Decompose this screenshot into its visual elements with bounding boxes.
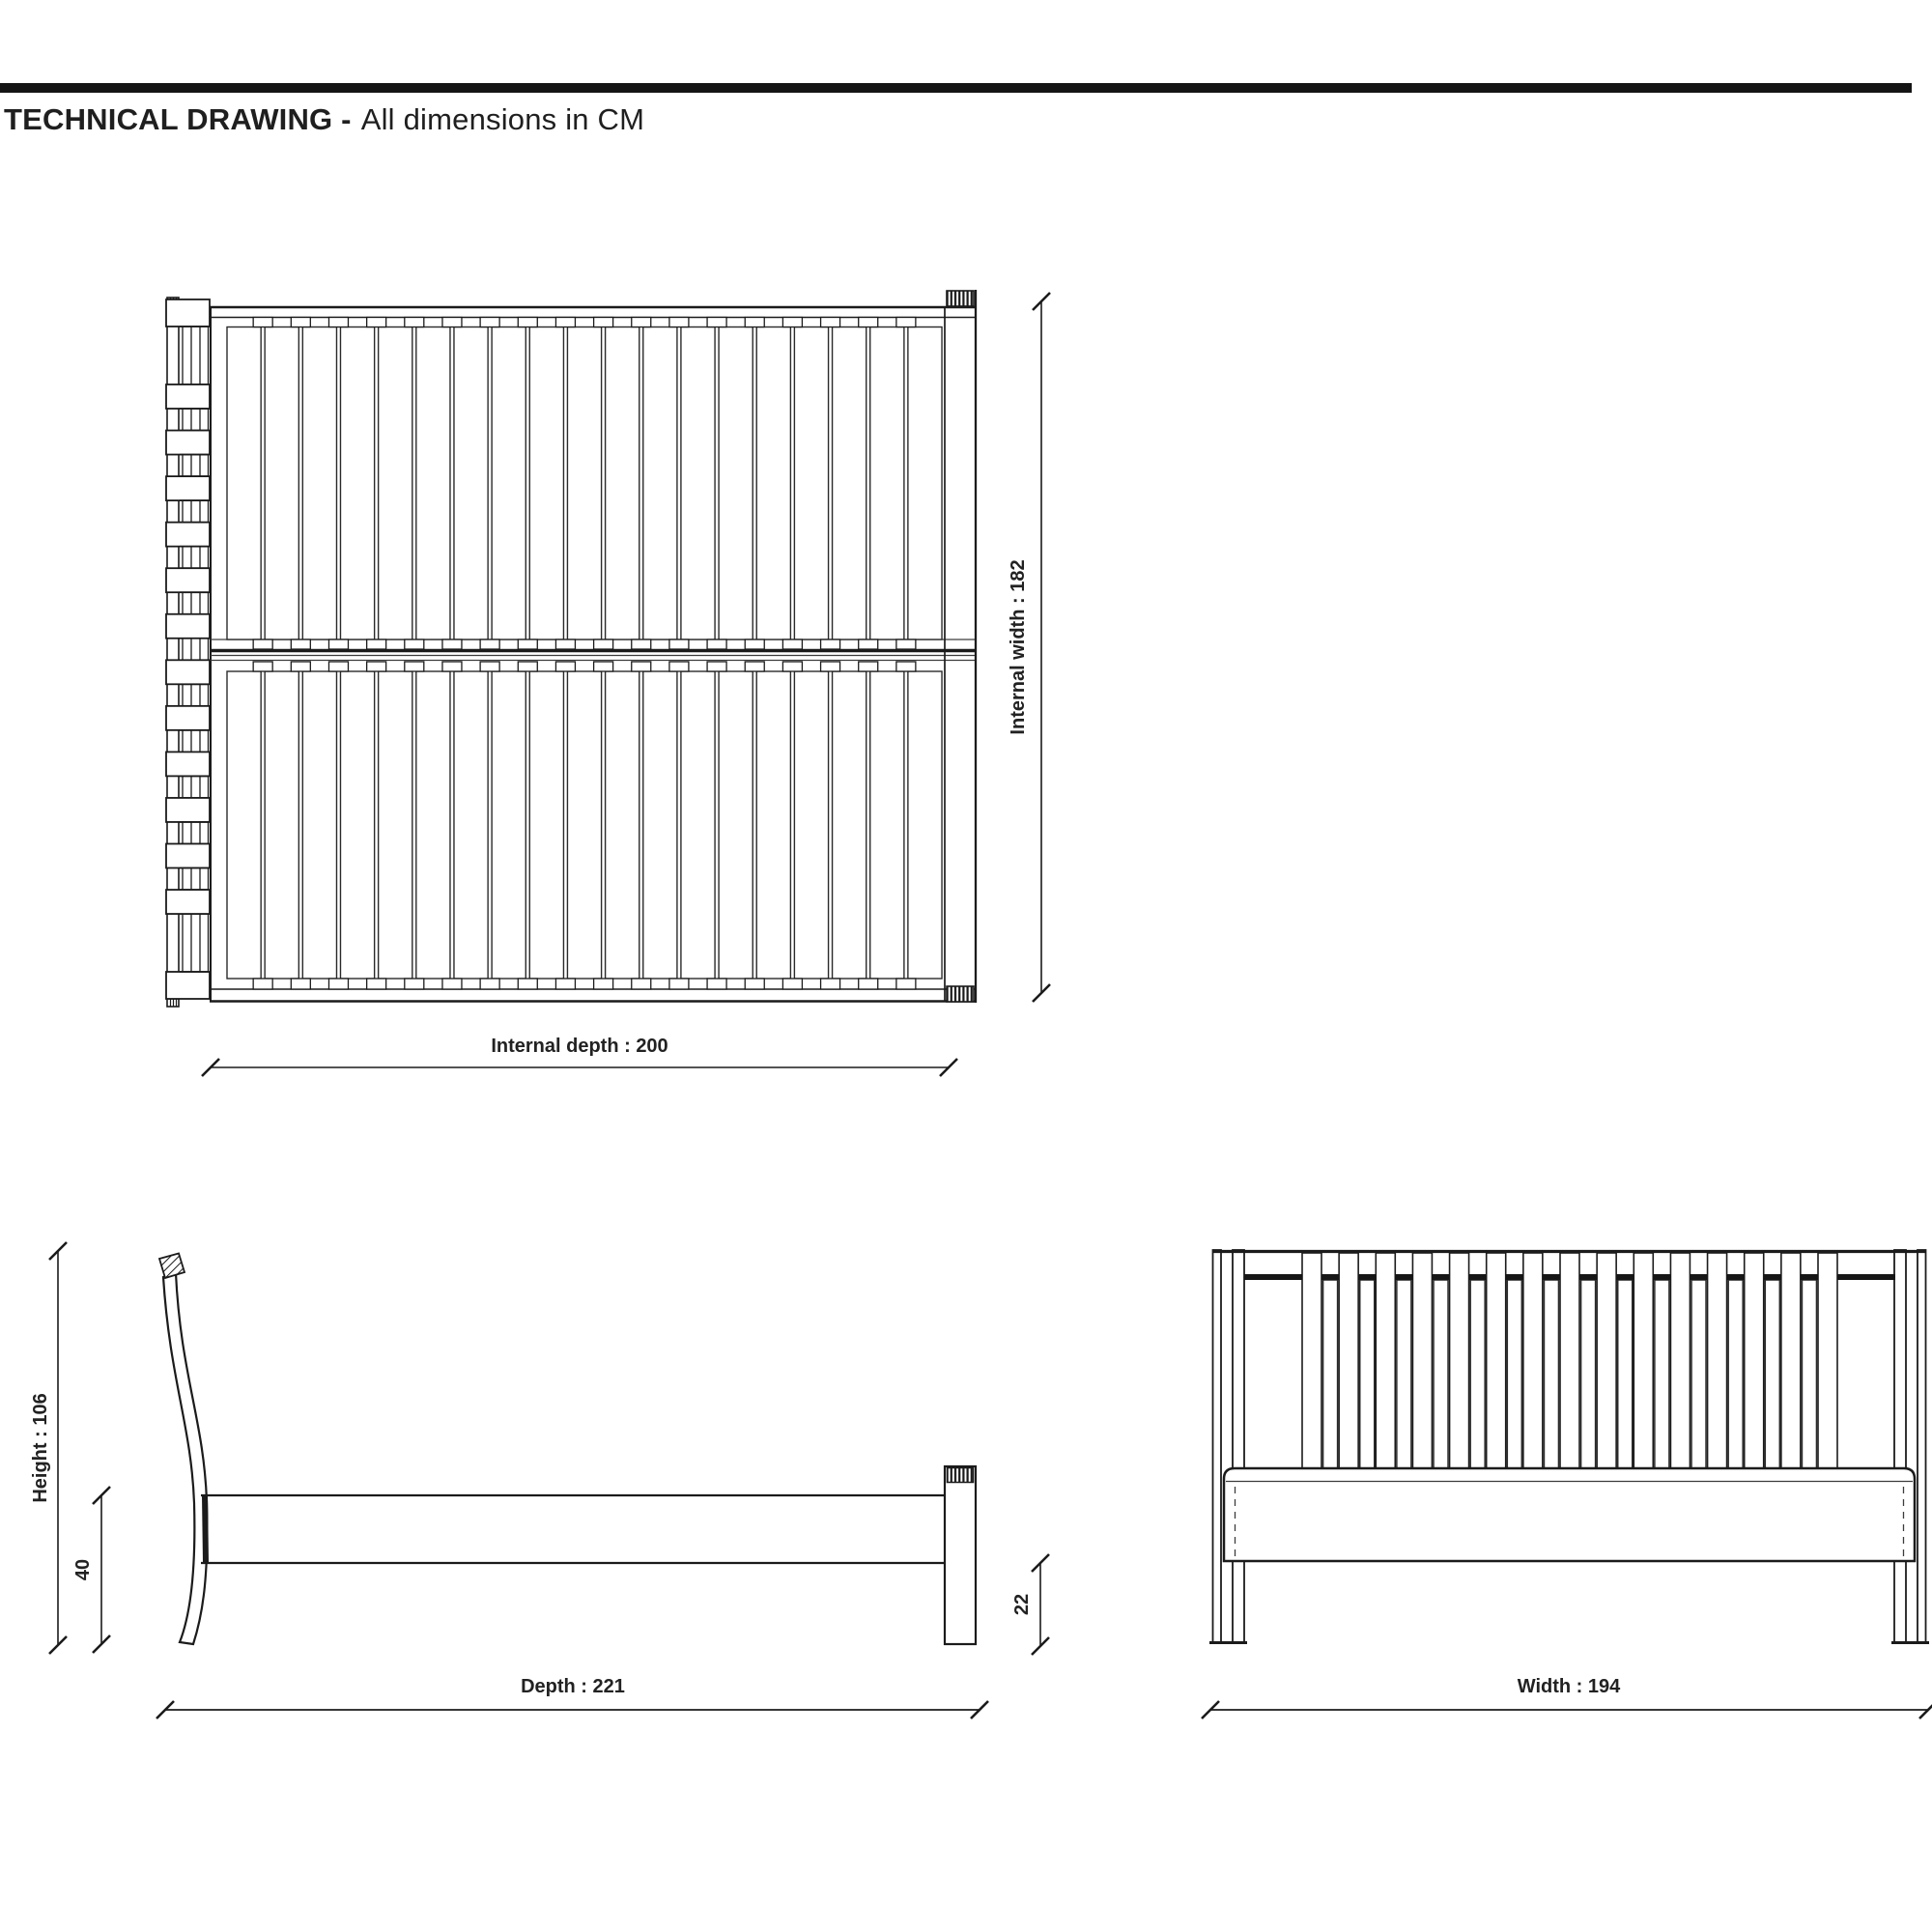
back-rail-dash (1690, 1274, 1707, 1280)
slat-cap (480, 318, 499, 327)
back-slat (1655, 1280, 1669, 1468)
dim-22-label: 22 (1011, 1594, 1033, 1615)
slat-cap (405, 318, 424, 327)
slat-cap (859, 639, 878, 649)
slat-cap (291, 639, 310, 649)
base-slat-lower (870, 671, 904, 979)
slat-cap (253, 639, 272, 649)
slat-cap (291, 318, 310, 327)
slat-cap (859, 662, 878, 671)
slat-cap (405, 639, 424, 649)
slat-cap (405, 662, 424, 671)
front-slat (1745, 1253, 1764, 1468)
base-slat-lower (833, 671, 867, 979)
dim-height-label: Height : 106 (30, 1393, 51, 1502)
back-rail-dash (1543, 1274, 1560, 1280)
right-post-inner-strip (1894, 1250, 1906, 1643)
slat-cap (555, 318, 575, 327)
back-rail-dash (1469, 1274, 1487, 1280)
post-hatch-cap (159, 1254, 185, 1279)
back-slat (1397, 1280, 1411, 1468)
back-slat (1323, 1280, 1338, 1468)
headboard-slat-gap-group (180, 914, 209, 972)
headboard-slat-gap-group (180, 500, 209, 523)
slat-cap (632, 318, 651, 327)
slat-cap (555, 662, 575, 671)
base-slat-upper (454, 327, 488, 640)
headboard-slat-gap-group (180, 327, 209, 384)
dim-depth-label: Depth : 221 (521, 1676, 625, 1697)
back-rail-dash (1432, 1274, 1449, 1280)
back-rail-dash (1616, 1274, 1634, 1280)
base-slat-upper (681, 327, 715, 640)
base-slat-upper (227, 327, 261, 640)
front-slat (1818, 1253, 1837, 1468)
slat-cap (859, 318, 878, 327)
base-slat-upper (606, 327, 639, 640)
base-slat-lower (908, 671, 942, 979)
slat-cap (782, 662, 802, 671)
slat-cap (253, 662, 272, 671)
left-post-outer-strip (1213, 1250, 1222, 1643)
base-slat-upper (908, 327, 942, 640)
back-rail-dash (1837, 1274, 1895, 1280)
slat-cap (821, 318, 840, 327)
base-slat-lower (379, 671, 412, 979)
back-slat (1765, 1280, 1779, 1468)
slat-cap (821, 662, 840, 671)
headboard-block (166, 476, 210, 500)
back-rail-dash (1395, 1274, 1412, 1280)
front-view (1209, 1250, 1929, 1643)
base-slat-upper (340, 327, 374, 640)
slat-cap (896, 979, 916, 989)
front-slat (1560, 1253, 1579, 1468)
base-slat-upper (529, 327, 563, 640)
slat-cap (328, 662, 348, 671)
base-slat-lower (265, 671, 298, 979)
headboard-corner-block (166, 299, 210, 327)
headboard-slat-gap-group (180, 684, 209, 706)
headboard-slat-gap-group (180, 455, 209, 477)
slat-cap (480, 662, 499, 671)
dim-internal-depth-label: Internal depth : 200 (491, 1036, 668, 1057)
front-slat (1412, 1253, 1432, 1468)
base-slat-upper (870, 327, 904, 640)
slat-cap (367, 662, 386, 671)
foot-post (945, 1466, 976, 1644)
slat-cap (632, 639, 651, 649)
slat-cap (291, 979, 310, 989)
front-slat (1339, 1253, 1358, 1468)
slat-cap (594, 318, 613, 327)
base-slat-upper (492, 327, 526, 640)
slat-cap (442, 662, 462, 671)
headboard-block (166, 384, 210, 409)
base-slat-lower (492, 671, 526, 979)
dim-40-label: 40 (72, 1559, 94, 1580)
slat-cap (782, 318, 802, 327)
front-slat (1523, 1253, 1543, 1468)
headboard-slat-gap-group (180, 822, 209, 844)
base-slat-lower (756, 671, 790, 979)
back-slat (1470, 1280, 1485, 1468)
headboard-slat-gap-group (180, 776, 209, 798)
headboard-slat-gap-group (180, 639, 209, 661)
back-slat (1360, 1280, 1375, 1468)
slat-cap (518, 979, 537, 989)
slat-cap (594, 979, 613, 989)
slat-cap (253, 318, 272, 327)
technical-drawing-canvas: Internal width : 182 Internal depth : 20… (0, 0, 1932, 1932)
base-slat-lower (454, 671, 488, 979)
slat-cap (707, 662, 726, 671)
slat-cap (594, 662, 613, 671)
front-slat (1302, 1253, 1321, 1468)
slat-cap (480, 979, 499, 989)
slat-cap (367, 318, 386, 327)
slat-cap (518, 639, 537, 649)
slat-cap (821, 639, 840, 649)
left-post-inner-strip (1233, 1250, 1244, 1643)
back-slat (1618, 1280, 1633, 1468)
base-slat-upper (379, 327, 412, 640)
slat-cap (896, 662, 916, 671)
headboard-block (166, 568, 210, 592)
headboard-corner-block (166, 972, 210, 999)
headboard-block (166, 523, 210, 547)
headboard-slat-gap-group (180, 868, 209, 891)
base-slat-lower (681, 671, 715, 979)
back-rail-dash (1579, 1274, 1597, 1280)
slat-cap (328, 639, 348, 649)
slat-cap (669, 318, 689, 327)
slat-cap (480, 639, 499, 649)
headboard-block (166, 660, 210, 684)
front-slat (1376, 1253, 1395, 1468)
slat-cap (782, 639, 802, 649)
front-slat (1781, 1253, 1801, 1468)
headboard-slat-gap-group (180, 409, 209, 431)
base-slat-upper (833, 327, 867, 640)
slat-cap (745, 318, 764, 327)
front-slat (1708, 1253, 1727, 1468)
hatch-cap (947, 291, 974, 306)
headboard-block (166, 844, 210, 868)
base-slat-lower (719, 671, 753, 979)
slat-cap (405, 979, 424, 989)
technical-drawing-page: TECHNICAL DRAWING -All dimensions in CM … (0, 0, 1932, 1932)
back-rail-dash (1727, 1274, 1745, 1280)
back-slat (1728, 1280, 1743, 1468)
slat-cap (707, 318, 726, 327)
back-slat (1691, 1280, 1706, 1468)
base-slat-upper (794, 327, 828, 640)
slat-cap (555, 979, 575, 989)
base-slat-upper (567, 327, 601, 640)
hatch-cap (948, 1468, 974, 1483)
curved-headboard-post (163, 1273, 207, 1644)
rail-tenon-mark (205, 1495, 206, 1563)
slat-cap (707, 639, 726, 649)
slat-cap (328, 318, 348, 327)
slat-cap (594, 639, 613, 649)
slat-cap (859, 979, 878, 989)
slat-cap (745, 979, 764, 989)
slat-cap (632, 662, 651, 671)
back-slat (1581, 1280, 1596, 1468)
slat-cap (518, 318, 537, 327)
back-slat (1802, 1280, 1816, 1468)
back-slat (1507, 1280, 1521, 1468)
headboard-block (166, 890, 210, 914)
base-slat-upper (719, 327, 753, 640)
headboard-block (166, 798, 210, 822)
front-slat (1634, 1253, 1653, 1468)
slat-cap (896, 639, 916, 649)
right-post-outer-strip (1918, 1250, 1926, 1643)
hatch-cap (947, 986, 974, 1002)
slat-cap (707, 979, 726, 989)
headboard-block (166, 431, 210, 455)
back-rail-dash (1653, 1274, 1670, 1280)
slat-cap (442, 318, 462, 327)
front-bed-rail (1224, 1468, 1915, 1561)
back-slat (1434, 1280, 1448, 1468)
base-slat-lower (340, 671, 374, 979)
base-slat-upper (416, 327, 450, 640)
base-slat-lower (416, 671, 450, 979)
headboard-slat-gap-group (180, 730, 209, 753)
base-slat-lower (794, 671, 828, 979)
base-slat-upper (302, 327, 336, 640)
back-rail-dash (1764, 1274, 1781, 1280)
base-slat-lower (606, 671, 639, 979)
base-slat-lower (529, 671, 563, 979)
headboard-slat-gap-group (180, 547, 209, 569)
side-view (159, 1254, 976, 1645)
headboard-block (166, 706, 210, 730)
slat-cap (367, 979, 386, 989)
base-slat-upper (265, 327, 298, 640)
slat-cap (821, 979, 840, 989)
slat-cap (669, 979, 689, 989)
back-rail-dash (1358, 1274, 1376, 1280)
slat-cap (632, 979, 651, 989)
slat-cap (555, 639, 575, 649)
slat-cap (291, 662, 310, 671)
back-slat (1544, 1280, 1558, 1468)
dim-internal-width-label: Internal width : 182 (1008, 559, 1029, 734)
slat-cap (745, 639, 764, 649)
front-slat (1450, 1253, 1469, 1468)
slat-cap (896, 318, 916, 327)
slat-cap (367, 639, 386, 649)
slat-cap (442, 639, 462, 649)
base-slat-upper (643, 327, 677, 640)
back-rail-dash (1801, 1274, 1818, 1280)
back-rail-dash (1321, 1274, 1339, 1280)
slat-cap (328, 979, 348, 989)
base-slat-lower (567, 671, 601, 979)
dim-width-label: Width : 194 (1518, 1676, 1621, 1697)
slat-cap (669, 662, 689, 671)
slat-cap (442, 979, 462, 989)
slat-cap (745, 662, 764, 671)
base-slat-upper (756, 327, 790, 640)
base-slat-lower (302, 671, 336, 979)
top-view-plan (166, 290, 976, 1007)
back-rail-dash (1244, 1274, 1302, 1280)
slat-cap (253, 979, 272, 989)
front-slat (1487, 1253, 1506, 1468)
front-slat (1670, 1253, 1690, 1468)
headboard-block (166, 614, 210, 639)
headboard-slat-gap-group (180, 592, 209, 614)
front-slat (1597, 1253, 1616, 1468)
slat-cap (669, 639, 689, 649)
back-rail-dash (1506, 1274, 1523, 1280)
headboard-block (166, 752, 210, 776)
base-slat-lower (643, 671, 677, 979)
slat-cap (782, 979, 802, 989)
base-slat-lower (227, 671, 261, 979)
slat-cap (518, 662, 537, 671)
